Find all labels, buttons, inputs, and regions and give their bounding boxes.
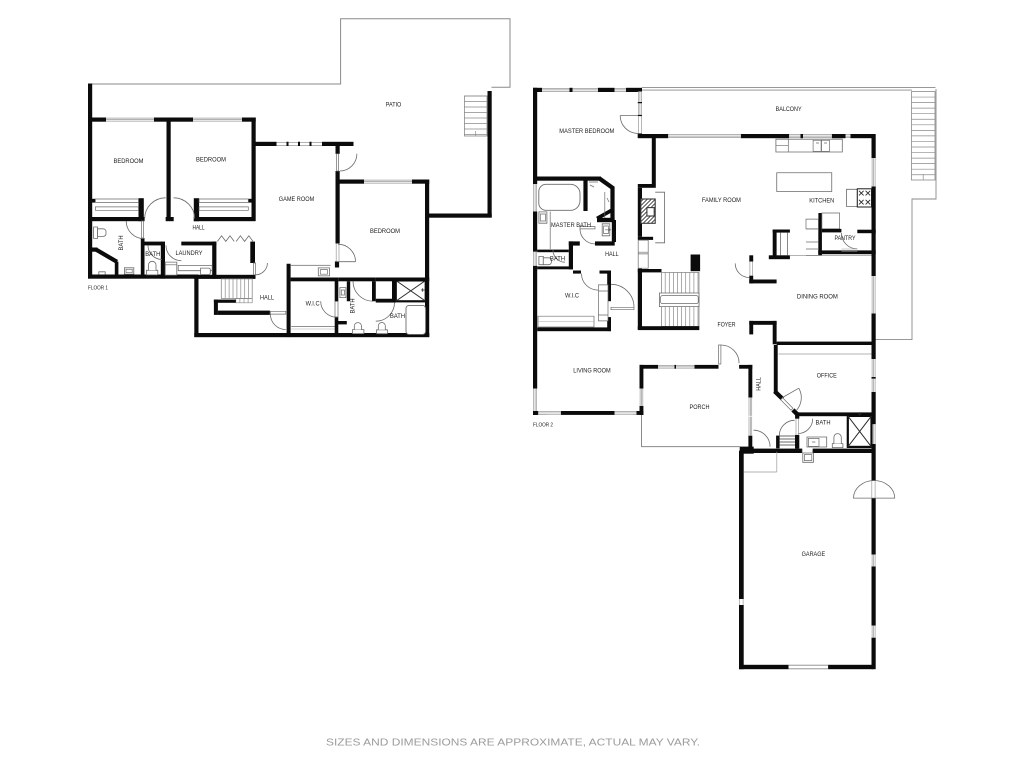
svg-text:W.I.C: W.I.C [565, 292, 580, 299]
svg-text:OFFICE: OFFICE [817, 373, 837, 380]
svg-text:GARAGE: GARAGE [802, 551, 826, 558]
svg-text:PANTRY: PANTRY [835, 235, 856, 242]
svg-text:BEDROOM: BEDROOM [196, 157, 226, 164]
svg-text:HALL: HALL [605, 251, 619, 258]
svg-text:BEDROOM: BEDROOM [114, 158, 144, 165]
svg-text:BALCONY: BALCONY [776, 106, 802, 113]
svg-text:HALL: HALL [193, 225, 205, 232]
svg-text:FLOOR 1: FLOOR 1 [88, 286, 108, 292]
svg-text:HALL: HALL [756, 377, 763, 391]
svg-text:BATH: BATH [350, 299, 357, 314]
svg-text:PORCH: PORCH [690, 404, 710, 411]
svg-text:BATH: BATH [118, 236, 125, 251]
svg-text:DINING ROOM: DINING ROOM [797, 294, 838, 301]
svg-text:MASTER BATH: MASTER BATH [551, 222, 591, 229]
svg-text:GAME ROOM: GAME ROOM [279, 196, 315, 203]
svg-text:BATH: BATH [390, 313, 405, 320]
svg-text:LIVING ROOM: LIVING ROOM [573, 368, 611, 375]
svg-text:FOYER: FOYER [718, 322, 737, 329]
svg-text:KITCHEN: KITCHEN [809, 197, 834, 204]
svg-text:MASTER BEDROOM: MASTER BEDROOM [559, 128, 614, 135]
svg-text:PATIO: PATIO [386, 102, 402, 109]
svg-text:HALL: HALL [260, 295, 275, 302]
svg-text:BATH: BATH [816, 420, 831, 427]
svg-text:BEDROOM: BEDROOM [370, 228, 400, 235]
svg-text:FAMILY ROOM: FAMILY ROOM [702, 197, 741, 204]
svg-text:W.I.C: W.I.C [306, 301, 321, 308]
svg-text:FLOOR 2: FLOOR 2 [533, 423, 553, 429]
svg-text:BATH: BATH [550, 256, 565, 263]
svg-text:LAUNDRY: LAUNDRY [176, 250, 203, 257]
svg-text:BATH: BATH [145, 251, 160, 258]
svg-text:SIZES AND DIMENSIONS ARE APPRO: SIZES AND DIMENSIONS ARE APPROXIMATE, AC… [326, 738, 700, 749]
